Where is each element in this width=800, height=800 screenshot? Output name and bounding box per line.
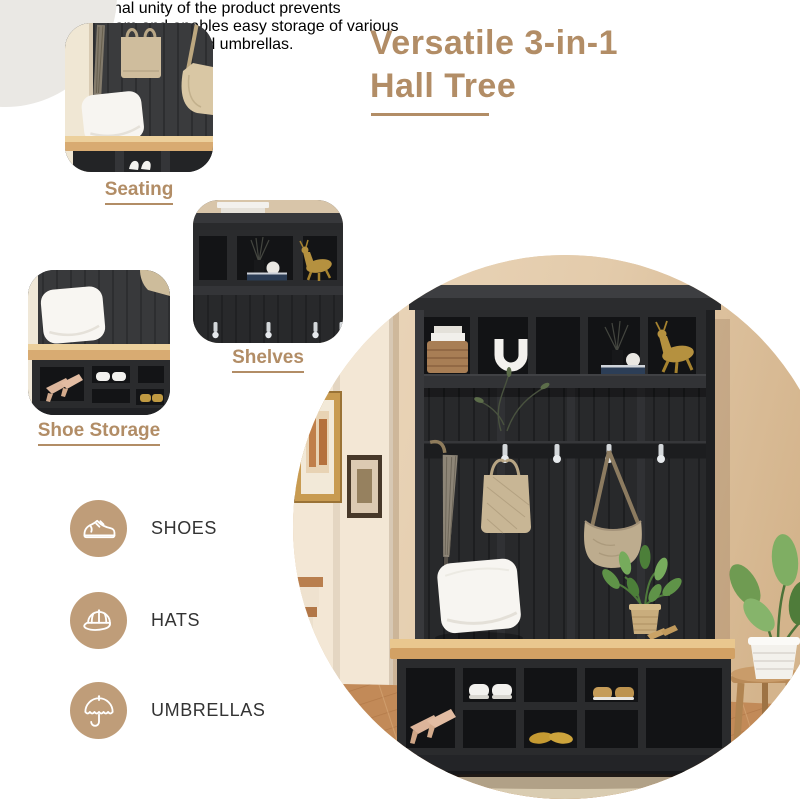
- description-line: The multifunctional unity of the product…: [0, 0, 800, 18]
- seating-callout-label: Seating: [65, 179, 213, 205]
- title-line-2: Hall Tree: [370, 65, 618, 108]
- room-scene: [293, 255, 800, 799]
- feature-label: UMBRELLAS: [151, 700, 265, 721]
- umbrella-icon: [70, 682, 127, 739]
- books-on-top: [217, 202, 269, 213]
- feature-umbrellas: UMBRELLAS: [70, 682, 265, 739]
- seating-callout-image: [65, 23, 213, 172]
- gold-picture-frame: [294, 392, 341, 502]
- hall-tree: [379, 285, 749, 789]
- cap-icon: [70, 592, 127, 649]
- sneaker-icon: [70, 500, 127, 557]
- feature-label: SHOES: [151, 518, 217, 539]
- shelves-callout-label: Shelves: [193, 347, 343, 373]
- shoe-storage-photo: [28, 270, 170, 415]
- pillow: [40, 285, 106, 344]
- seating-photo: [65, 23, 213, 172]
- pillow: [80, 90, 145, 144]
- feature-hats: HATS: [70, 592, 200, 649]
- title-line-1: Versatile 3-in-1: [370, 22, 618, 65]
- room-scene-photo: [293, 255, 800, 799]
- basket-and-books: [427, 326, 468, 373]
- page-title: Versatile 3-in-1 Hall Tree: [370, 22, 618, 108]
- title-underline: [371, 113, 489, 116]
- shoe-storage-callout-label: Shoe Storage: [28, 420, 170, 446]
- feature-label: HATS: [151, 610, 200, 631]
- small-picture-frame: [347, 455, 382, 518]
- shelves-photo: [193, 200, 343, 343]
- shelves-callout-image: [193, 200, 343, 343]
- feature-shoes: SHOES: [70, 500, 217, 557]
- shoe-storage-callout-image: [28, 270, 170, 415]
